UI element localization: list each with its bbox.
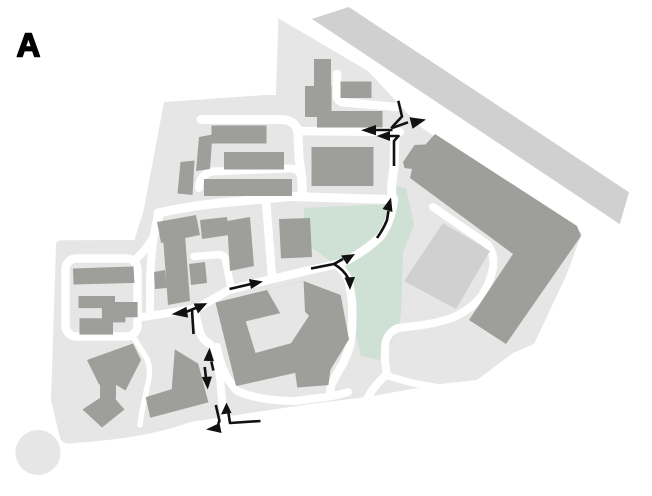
svg-text:A: A xyxy=(17,27,41,64)
